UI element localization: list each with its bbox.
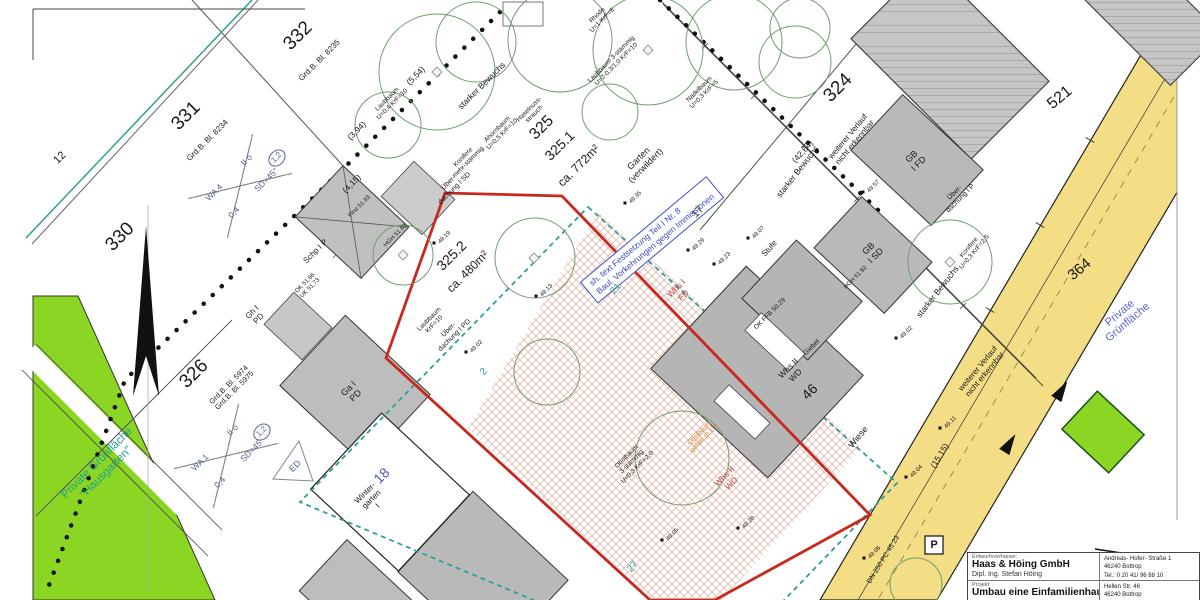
tree-canopy <box>770 0 830 58</box>
designer-name: Haas & Höing GmbH <box>972 560 1095 571</box>
designer-address-street: Andreas- Hofer- Straße 1 <box>1104 555 1195 563</box>
designer-person: Dipl. Ing. Stefan Höing <box>972 571 1095 578</box>
ed-triangle <box>273 441 313 481</box>
parking-sign <box>925 536 943 554</box>
elevation-point <box>737 527 740 530</box>
north-arrow-icon <box>133 226 159 396</box>
title-block: Entwurfsverfasser: Haas & Höing GmbH Dip… <box>967 552 1200 600</box>
elevation-point <box>862 191 865 194</box>
site-plan: WA 4 II o 0,4 SD=45° WA 1 II o 0,4 SD=45… <box>0 0 1200 600</box>
designer-address-city: 46240 Bottrop <box>1104 563 1195 571</box>
elevation-point <box>433 242 436 245</box>
green-parcel-on-street <box>1062 391 1144 473</box>
tree-canopy <box>759 26 831 98</box>
tree-canopy <box>582 84 638 140</box>
elevation-point <box>624 202 627 205</box>
project-address-city: 46240 Bottrop <box>1104 591 1195 599</box>
tree-canopy <box>436 2 516 82</box>
elevation-point <box>713 263 716 266</box>
elevation-point <box>905 476 908 479</box>
designer-phone: Tel.: 0 20 41/ 96 88 10 <box>1104 572 1195 580</box>
elevation-point <box>863 557 866 560</box>
drawing-margin-right <box>1177 55 1200 520</box>
elevation-point <box>747 237 750 240</box>
elevation-point <box>939 427 942 430</box>
elevation-point <box>661 539 664 542</box>
project-address-street: Hellen Str. 46 <box>1104 583 1195 591</box>
elevation-point <box>535 295 538 298</box>
elevation-point <box>465 351 468 354</box>
elevation-point <box>687 249 690 252</box>
shed-building <box>295 166 409 279</box>
tree-canopy <box>355 92 421 158</box>
project-name: Umbau eine Einfamilienhauses <box>972 588 1095 599</box>
tree-canopy <box>686 0 782 90</box>
elevation-point <box>895 337 898 340</box>
